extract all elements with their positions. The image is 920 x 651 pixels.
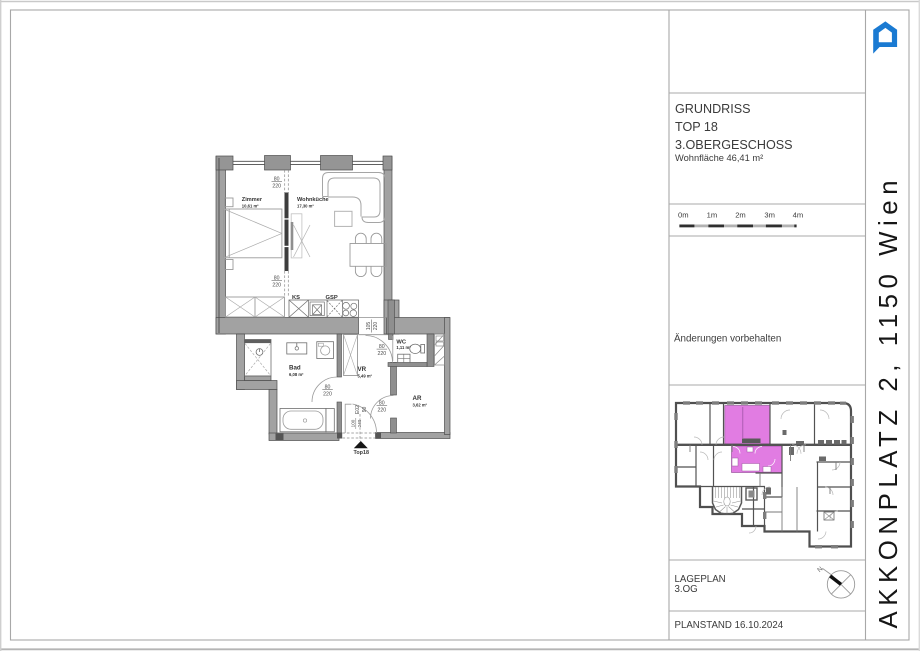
svg-text:GRUNDRISS: GRUNDRISS [675,102,751,116]
svg-text:Wohnküche: Wohnküche [297,197,329,203]
svg-text:100: 100 [351,419,356,427]
svg-text:3.OG: 3.OG [675,584,698,595]
svg-text:PLANSTAND 16.10.2024: PLANSTAND 16.10.2024 [675,620,784,631]
svg-text:10,61 m²: 10,61 m² [242,204,259,209]
svg-text:3m: 3m [764,211,775,220]
svg-text:3,62 m²: 3,62 m² [413,403,428,408]
svg-text:TOP 18: TOP 18 [675,120,718,134]
svg-text:220: 220 [323,392,332,398]
svg-text:1,11 m²: 1,11 m² [396,345,411,350]
svg-text:Änderungen vorbehalten: Änderungen vorbehalten [674,334,781,345]
svg-text:Bad: Bad [289,365,301,372]
svg-text:220: 220 [373,322,379,331]
svg-text:6,08 m²: 6,08 m² [289,372,304,377]
svg-text:240: 240 [357,419,362,427]
svg-text:AR: AR [413,395,422,402]
svg-text:E02: E02 [355,405,361,414]
svg-text:220: 220 [377,408,386,414]
svg-text:220: 220 [272,184,281,190]
svg-text:17,30 m²: 17,30 m² [297,204,314,209]
svg-text:KS: KS [292,295,300,301]
svg-text:2m: 2m [735,211,746,220]
svg-text:VR: VR [358,366,367,373]
svg-text:3.OBERGESCHOSS: 3.OBERGESCHOSS [675,138,793,152]
svg-text:Zimmer: Zimmer [242,197,263,203]
svg-text:1m: 1m [707,211,718,220]
svg-text:GSP: GSP [326,295,338,301]
svg-text:Wohnfläche 46,41 m²: Wohnfläche 46,41 m² [675,153,763,163]
svg-text:Top18: Top18 [354,450,369,456]
svg-text:AKKONPLATZ 2, 1150 Wien: AKKONPLATZ 2, 1150 Wien [875,175,903,629]
svg-text:220: 220 [272,283,281,289]
svg-text:220: 220 [377,351,386,357]
svg-text:5,49 m²: 5,49 m² [358,374,373,379]
svg-text:90: 90 [362,407,368,413]
svg-text:0m: 0m [678,211,689,220]
svg-text:4m: 4m [793,211,804,220]
